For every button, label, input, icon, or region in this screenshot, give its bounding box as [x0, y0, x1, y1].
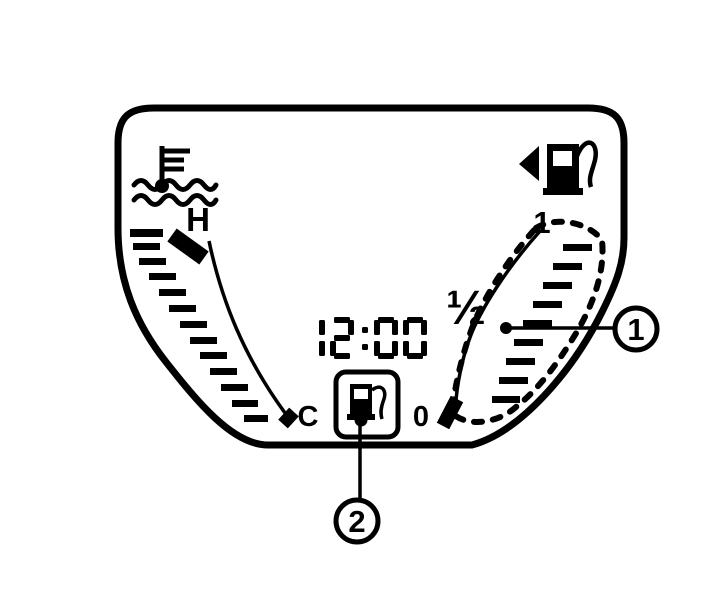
- callout-1-pointer-dot: [500, 322, 512, 334]
- temperature-low-label: C: [298, 401, 319, 433]
- temperature-high-label: H: [186, 201, 210, 238]
- cluster-drawing: H C: [0, 0, 722, 592]
- instrument-cluster-illustration: H C: [0, 0, 722, 592]
- low-fuel-warning-indicator: [336, 372, 398, 437]
- callout-1-number: 1: [627, 312, 644, 347]
- fuel-empty-label: 0: [413, 401, 429, 433]
- callout-2-number: 2: [348, 504, 365, 539]
- temperature-top-tick: [130, 229, 163, 237]
- temperature-level-marker: [283, 412, 294, 424]
